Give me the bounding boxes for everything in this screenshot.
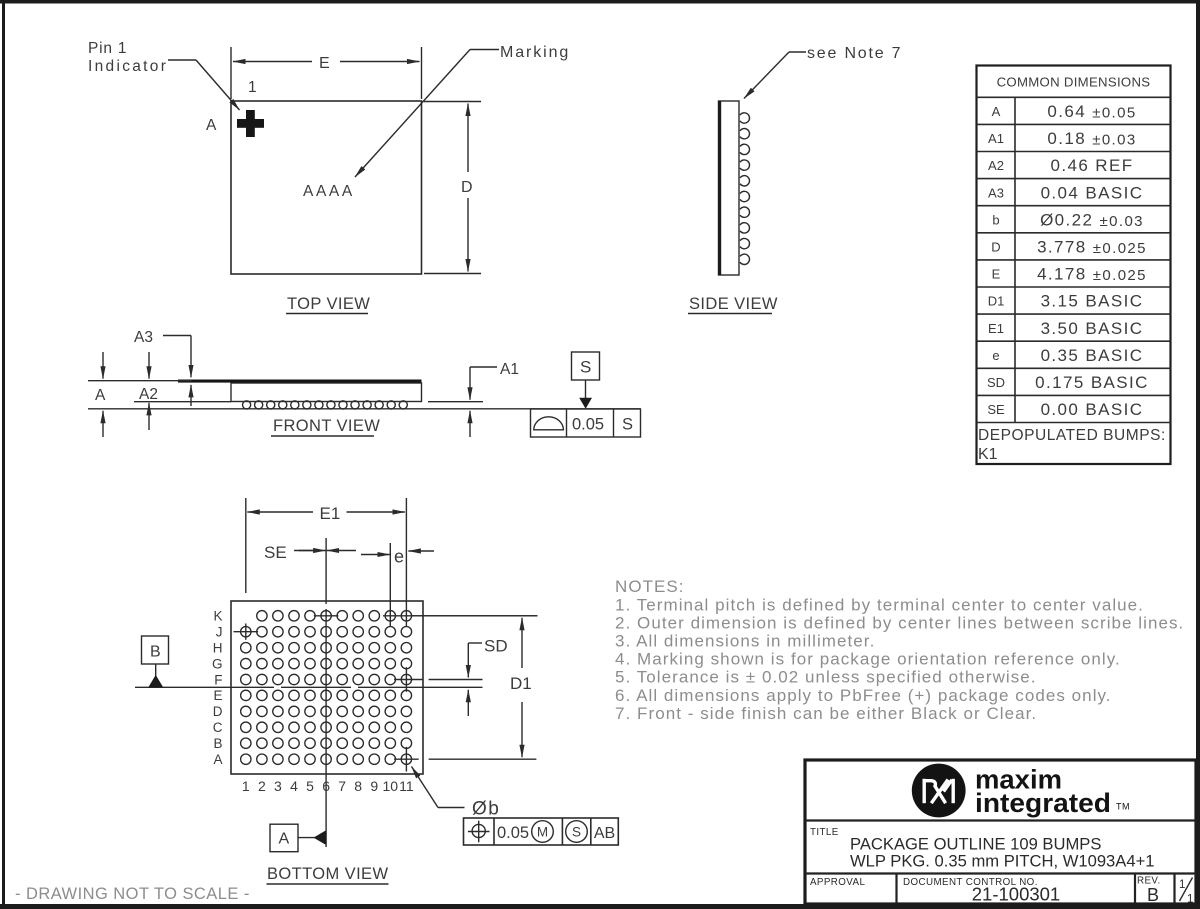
svg-text:H: H [213, 641, 223, 656]
svg-text:3. All dimensions in millimete: 3. All dimensions in millimeter. [615, 632, 875, 651]
svg-text:0.00 BASIC: 0.00 BASIC [1041, 400, 1144, 419]
svg-text:0.35 BASIC: 0.35 BASIC [1041, 346, 1144, 365]
svg-text:TITLE: TITLE [810, 827, 839, 838]
svg-text:F: F [214, 672, 222, 687]
svg-text:NOTES:: NOTES: [615, 577, 685, 596]
svg-text:K1: K1 [978, 446, 998, 463]
svg-text:10: 10 [383, 778, 399, 794]
svg-text:B: B [150, 644, 161, 661]
svg-text:D: D [213, 704, 223, 719]
svg-text:E: E [992, 267, 1001, 282]
svg-text:integrated: integrated [975, 788, 1111, 818]
svg-text:D: D [461, 179, 473, 196]
svg-text:M: M [537, 825, 548, 840]
svg-text:2. Outer dimension is defined: 2. Outer dimension is defined by center … [615, 613, 1184, 632]
svg-text:3.15 BASIC: 3.15 BASIC [1041, 292, 1144, 311]
svg-text:1: 1 [1187, 894, 1193, 906]
svg-text:A: A [213, 752, 222, 767]
svg-text:J: J [216, 625, 223, 640]
svg-text:E: E [213, 688, 222, 703]
svg-text:SE: SE [264, 543, 287, 562]
svg-text:A3: A3 [134, 329, 153, 346]
svg-text:0.64 ±0.05: 0.64 ±0.05 [1047, 102, 1136, 122]
svg-text:E: E [319, 55, 330, 72]
svg-text:D1: D1 [510, 674, 532, 693]
svg-text:BOTTOM VIEW: BOTTOM VIEW [267, 865, 388, 883]
svg-text:e: e [992, 348, 999, 363]
svg-text:A: A [279, 831, 290, 848]
svg-text:2: 2 [258, 778, 266, 794]
svg-text:4. Marking shown is for packag: 4. Marking shown is for package orientat… [615, 650, 1121, 669]
svg-text:6: 6 [322, 778, 330, 794]
svg-text:21-100301: 21-100301 [972, 884, 1060, 905]
svg-text:A: A [95, 387, 106, 404]
svg-text:A2: A2 [139, 386, 158, 403]
svg-text:0.05: 0.05 [497, 824, 529, 842]
svg-text:A: A [206, 117, 217, 134]
svg-text:see Note 7: see Note 7 [807, 45, 902, 62]
svg-text:A2: A2 [988, 158, 1004, 173]
svg-text:5: 5 [306, 778, 314, 794]
svg-text:E1: E1 [320, 504, 341, 523]
svg-text:SD: SD [987, 375, 1005, 390]
svg-text:b: b [992, 212, 999, 227]
svg-text:Pin 1: Pin 1 [88, 40, 127, 57]
svg-text:DEPOPULATED BUMPS:: DEPOPULATED BUMPS: [978, 427, 1166, 444]
svg-text:S: S [580, 358, 591, 377]
svg-text:9: 9 [370, 778, 378, 794]
svg-text:COMMON DIMENSIONS: COMMON DIMENSIONS [997, 75, 1151, 90]
svg-text:TOP VIEW: TOP VIEW [287, 295, 370, 313]
svg-text:SD: SD [484, 637, 508, 656]
svg-text:FRONT VIEW: FRONT VIEW [273, 417, 380, 435]
svg-text:D: D [991, 240, 1000, 255]
svg-text:3: 3 [274, 778, 282, 794]
svg-text:1: 1 [1179, 879, 1185, 891]
svg-text:0.05: 0.05 [572, 416, 604, 434]
svg-text:A: A [992, 104, 1001, 119]
svg-text:E1: E1 [988, 321, 1004, 336]
svg-text:Øb: Øb [472, 799, 500, 820]
svg-text:C: C [213, 720, 223, 735]
svg-text:AB: AB [594, 825, 615, 842]
svg-text:AAAA: AAAA [303, 183, 355, 200]
svg-text:8: 8 [354, 778, 362, 794]
svg-text:G: G [212, 656, 223, 671]
svg-text:6. All dimensions apply to PbF: 6. All dimensions apply to PbFree (+) pa… [615, 686, 1112, 705]
svg-text:A3: A3 [988, 185, 1004, 200]
svg-text:e: e [394, 547, 404, 567]
svg-text:Indicator: Indicator [88, 58, 168, 75]
svg-text:Marking: Marking [500, 44, 570, 61]
svg-text:A1: A1 [988, 131, 1004, 146]
svg-text:1. Terminal pitch is defined b: 1. Terminal pitch is defined by terminal… [615, 595, 1144, 614]
svg-text:1: 1 [248, 79, 257, 96]
svg-text:3.50 BASIC: 3.50 BASIC [1041, 319, 1144, 338]
svg-text:1: 1 [242, 778, 250, 794]
svg-text:- DRAWING NOT TO SCALE -: - DRAWING NOT TO SCALE - [15, 885, 250, 903]
svg-text:SE: SE [987, 402, 1005, 417]
svg-text:S: S [572, 825, 581, 840]
svg-text:S: S [622, 416, 633, 434]
svg-text:SIDE VIEW: SIDE VIEW [689, 295, 778, 313]
svg-text:5. Tolerance is ± 0.02 unless: 5. Tolerance is ± 0.02 unless specified … [615, 668, 1037, 687]
svg-text:D1: D1 [988, 294, 1005, 309]
svg-text:0.18 ±0.03: 0.18 ±0.03 [1047, 129, 1136, 149]
svg-text:4.178 ±0.025: 4.178 ±0.025 [1037, 265, 1147, 285]
svg-text:11: 11 [399, 778, 414, 794]
svg-text:K: K [213, 609, 222, 624]
svg-text:0.46 REF: 0.46 REF [1050, 156, 1133, 175]
svg-text:B: B [1147, 885, 1159, 905]
svg-text:3.778 ±0.025: 3.778 ±0.025 [1037, 238, 1147, 258]
svg-text:B: B [213, 736, 222, 751]
svg-text:0.175 BASIC: 0.175 BASIC [1035, 373, 1149, 392]
svg-text:7. Front - side finish can be: 7. Front - side finish can be either Bla… [615, 704, 1037, 723]
svg-text:7: 7 [338, 778, 346, 794]
svg-text:A1: A1 [500, 361, 519, 378]
svg-text:Ø0.22 ±0.03: Ø0.22 ±0.03 [1040, 210, 1144, 230]
svg-text:WLP PKG. 0.35 mm PITCH, W1093A: WLP PKG. 0.35 mm PITCH, W1093A4+1 [850, 852, 1155, 871]
svg-text:TM: TM [1116, 802, 1130, 812]
svg-text:0.04 BASIC: 0.04 BASIC [1041, 183, 1144, 202]
svg-text:APPROVAL: APPROVAL [810, 877, 865, 888]
svg-text:4: 4 [290, 778, 298, 794]
